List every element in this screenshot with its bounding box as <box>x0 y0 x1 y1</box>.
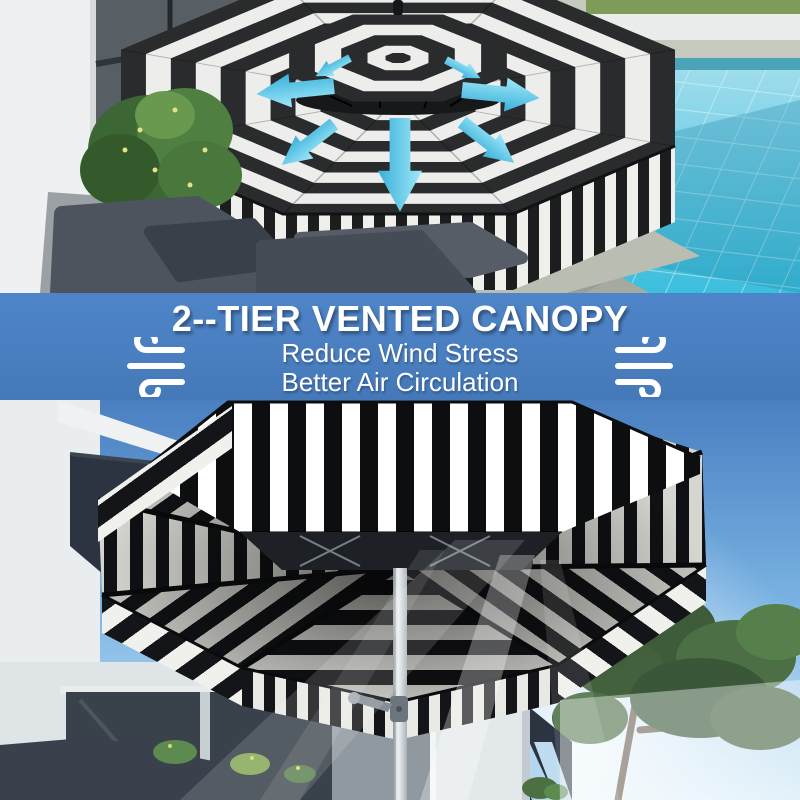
wind-gust-right-icon <box>606 337 682 397</box>
banner-2-tier-vented-canopy: 2--TIER VENTED CANOPY Reduce Wind Stress… <box>0 293 800 400</box>
finial <box>393 0 403 15</box>
product-image-2-tier-umbrella: 2--TIER VENTED CANOPY Reduce Wind Stress… <box>0 0 800 800</box>
wind-gust-left-icon <box>118 337 194 397</box>
bottom-scene-umbrella-underside-view <box>0 400 800 800</box>
banner-title: 2--TIER VENTED CANOPY <box>0 293 800 339</box>
top-scene-umbrella-aerial-view <box>0 0 800 293</box>
